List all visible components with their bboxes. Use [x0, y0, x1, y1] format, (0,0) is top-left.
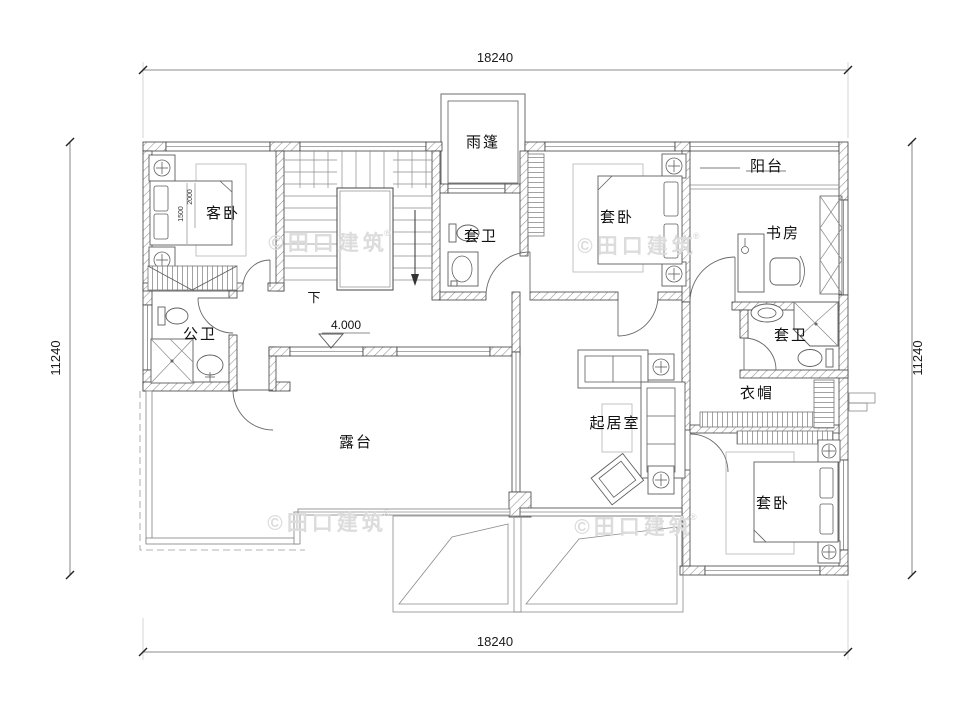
stair-down-label: 下: [307, 290, 320, 305]
public-bath-fixtures: [151, 307, 223, 383]
watermark-text: ©田口建筑: [268, 231, 387, 255]
room-label-cloakroom: 衣帽: [740, 385, 774, 402]
dim-bottom: 18240: [477, 634, 513, 649]
elevation-triangle: [319, 334, 343, 348]
room-label-study: 书房: [766, 225, 800, 242]
room-label-balcony: 阳台: [750, 158, 784, 175]
dim-right: 11240: [910, 340, 925, 375]
guest-bedroom-furniture: [148, 155, 246, 290]
interior-walls: [143, 151, 848, 566]
study-furniture: [738, 196, 842, 294]
staircase: [284, 151, 432, 290]
elevation-value: 4.000: [331, 318, 361, 332]
bed-dim-2000: 2000: [187, 189, 194, 205]
floor-plan-canvas: 18240 18240 11240 11240: [0, 0, 961, 722]
elevation-marker: 4.000: [319, 318, 370, 348]
room-label-suite-bath-right: 套卫: [774, 327, 808, 344]
watermark-reg-icon: ®: [383, 508, 390, 518]
watermark-text: ©田口建筑: [267, 511, 386, 535]
room-label-canopy: 雨篷: [466, 133, 500, 151]
watermark-text: ©田口建筑: [574, 515, 693, 539]
room-label-suite-bedroom-top: 套卧: [600, 209, 634, 226]
room-label-suite-bath-top: 套卫: [464, 228, 498, 245]
room-label-living-room: 起居室: [589, 415, 640, 432]
dim-top: 18240: [477, 50, 513, 65]
dim-left: 11240: [48, 340, 63, 375]
room-label-guest-bedroom: 客卧: [206, 205, 240, 222]
room-label-suite-bedroom-bottom: 套卧: [756, 495, 790, 512]
room-label-terrace: 露台: [339, 434, 373, 451]
watermark-reg-icon: ®: [693, 231, 700, 241]
watermark-reg-icon: ®: [690, 512, 697, 522]
room-label-public-bath: 公卫: [183, 326, 217, 343]
watermark-reg-icon: ®: [384, 228, 391, 238]
watermark-text: ©田口建筑: [577, 234, 696, 258]
floor-plan-sheet: 18240 18240 11240 11240: [0, 0, 961, 722]
bed-dim-1500: 1500: [178, 206, 185, 222]
